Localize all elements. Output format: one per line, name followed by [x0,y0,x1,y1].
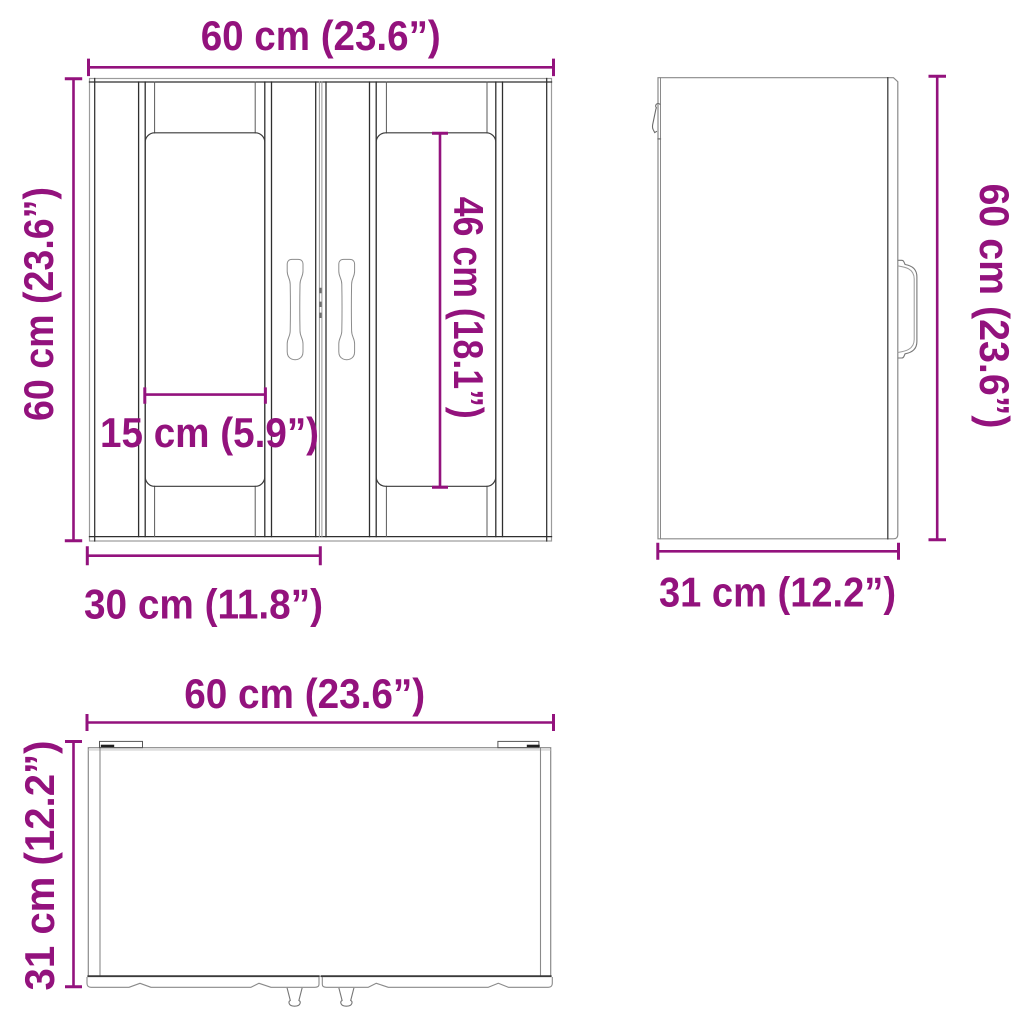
svg-text:60 cm (23.6”): 60 cm (23.6”) [184,670,425,717]
svg-text:60 cm (23.6”): 60 cm (23.6”) [15,187,62,421]
svg-text:15 cm (5.9”): 15 cm (5.9”) [100,409,319,456]
svg-text:46 cm (18.1”): 46 cm (18.1”) [445,197,492,419]
svg-text:30 cm (11.8”): 30 cm (11.8”) [84,581,323,628]
svg-text:31 cm (12.2”): 31 cm (12.2”) [659,569,896,616]
svg-text:31 cm (12.2”): 31 cm (12.2”) [16,741,63,991]
svg-text:60 cm (23.6”): 60 cm (23.6”) [971,184,1018,429]
svg-text:60 cm (23.6”): 60 cm (23.6”) [201,12,441,59]
